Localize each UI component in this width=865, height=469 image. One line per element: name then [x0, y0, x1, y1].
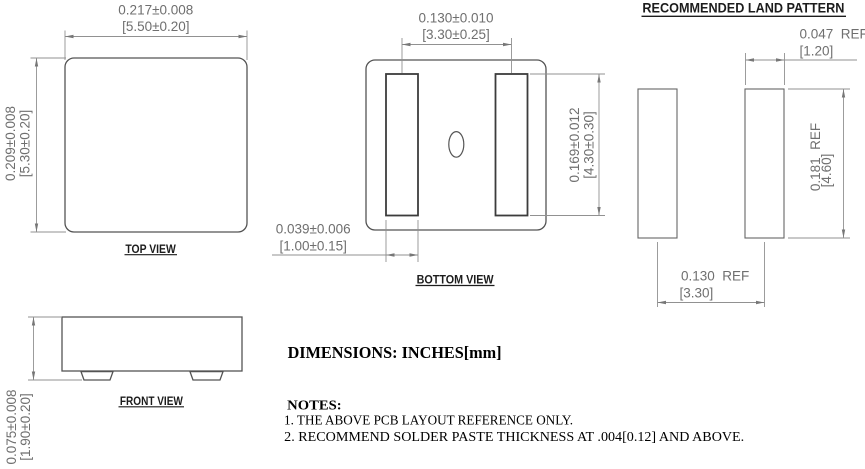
svg-text:FRONT VIEW: FRONT VIEW — [120, 396, 183, 408]
svg-text:TOP VIEW: TOP VIEW — [125, 244, 176, 256]
svg-text:RECOMMENDED LAND PATTERN: RECOMMENDED LAND PATTERN — [642, 0, 844, 16]
svg-text:0.039±0.006: 0.039±0.006 — [276, 222, 351, 237]
svg-text:[5.50±0.20]: [5.50±0.20] — [122, 19, 189, 34]
svg-text:1. THE ABOVE PCB LAYOUT REFERE: 1. THE ABOVE PCB LAYOUT REFERENCE ONLY. — [284, 414, 573, 429]
svg-text:[3.30±0.25]: [3.30±0.25] — [422, 27, 489, 42]
svg-text:0.130±0.010: 0.130±0.010 — [419, 10, 494, 25]
svg-text:[4.60]: [4.60] — [819, 154, 834, 188]
svg-text:[4.30±0.30]: [4.30±0.30] — [582, 111, 597, 178]
svg-text:BOTTOM VIEW: BOTTOM VIEW — [417, 275, 494, 287]
svg-text:2. RECOMMEND SOLDER PASTE THIC: 2. RECOMMEND SOLDER PASTE THICKNESS AT .… — [284, 430, 744, 445]
svg-text:[1.20]: [1.20] — [800, 43, 834, 58]
svg-text:0.169±0.012: 0.169±0.012 — [567, 108, 582, 183]
svg-text:0.130 REF: 0.130 REF — [681, 269, 749, 284]
svg-text:0.047 REF: 0.047 REF — [800, 27, 865, 42]
svg-text:[1.00±0.15]: [1.00±0.15] — [279, 239, 346, 254]
svg-text:0.075±0.008: 0.075±0.008 — [4, 390, 19, 465]
svg-text:[3.30]: [3.30] — [680, 286, 714, 301]
svg-text:[5.30±0.20]: [5.30±0.20] — [18, 110, 33, 177]
svg-text:NOTES:: NOTES: — [287, 399, 341, 414]
svg-text:[1.90±0.20]: [1.90±0.20] — [18, 393, 33, 460]
svg-text:DIMENSIONS: INCHES[mm]: DIMENSIONS: INCHES[mm] — [288, 343, 502, 362]
svg-text:0.209±0.008: 0.209±0.008 — [3, 106, 18, 181]
svg-text:0.217±0.008: 0.217±0.008 — [118, 2, 193, 17]
